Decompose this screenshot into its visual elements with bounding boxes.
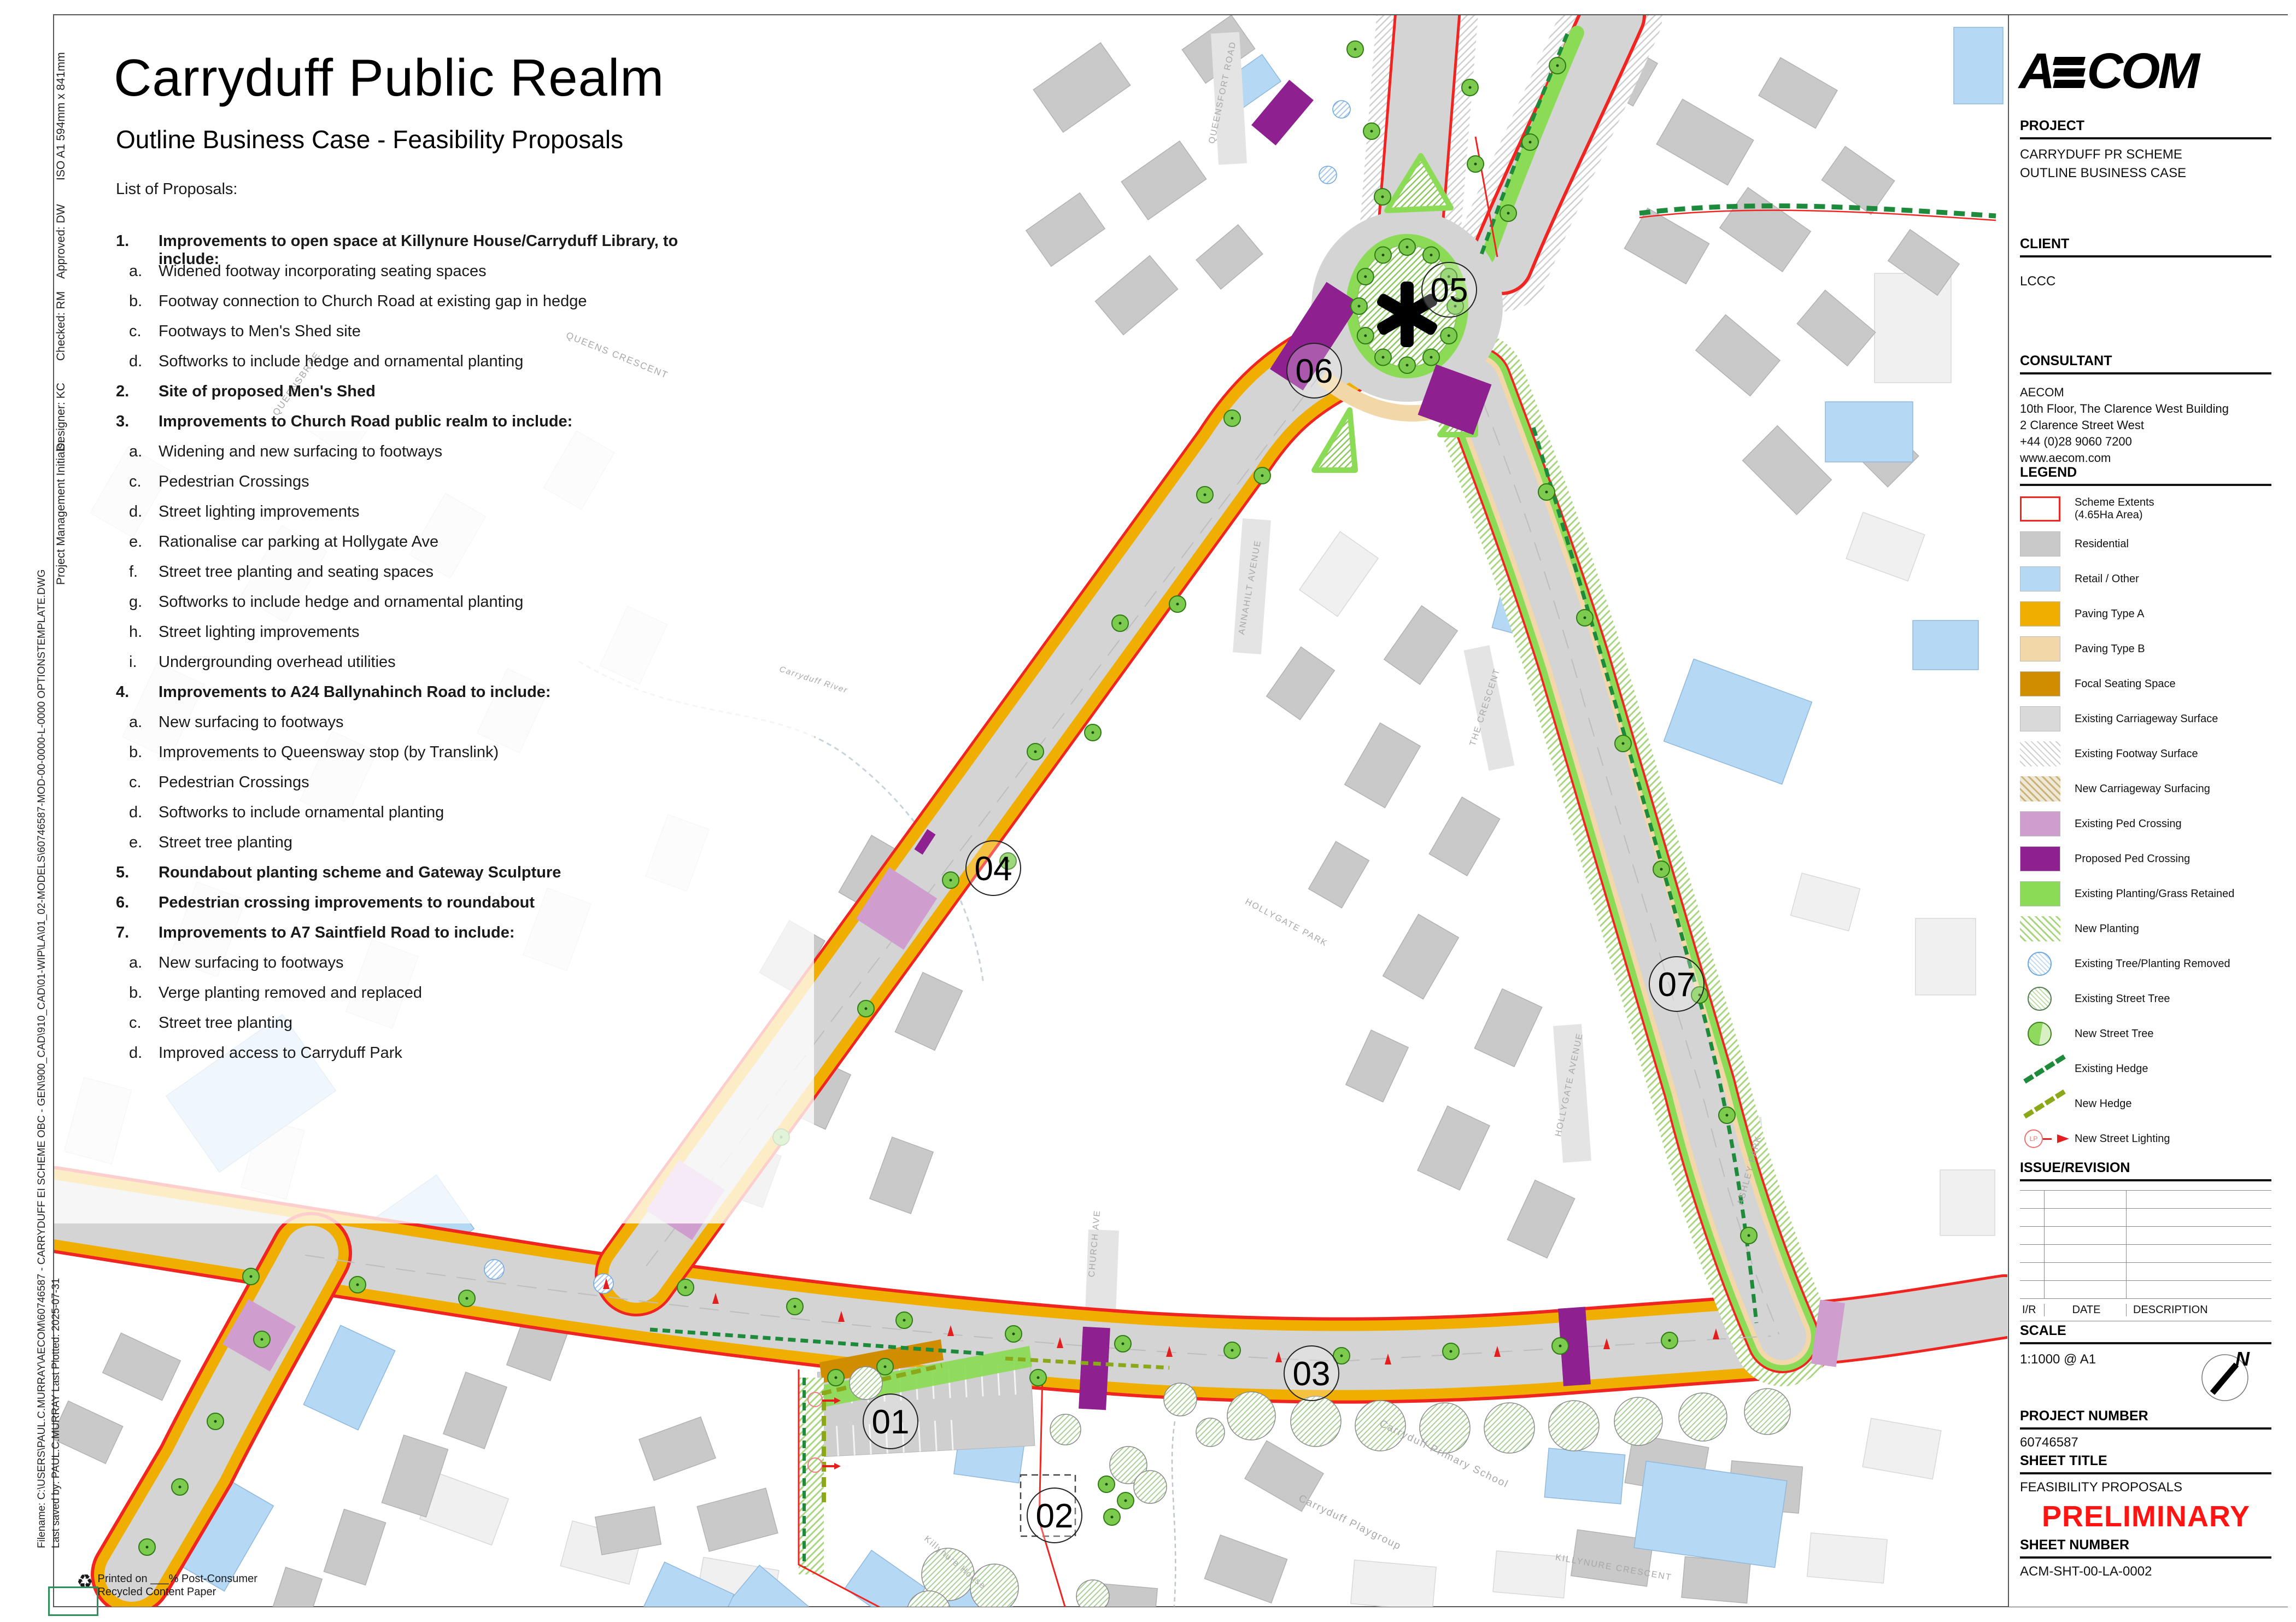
proposal-subitem: c.Footways to Men's Shed site [116, 323, 728, 353]
section-project-number: PROJECT NUMBER 60746587 [2020, 1408, 2271, 1450]
section-issue-revision: ISSUE/REVISION I/RDATEDESCRIPTION [2020, 1160, 2271, 1321]
legend-swatch-rect [2020, 881, 2075, 906]
margin-note: Checked: RM [55, 291, 68, 361]
legend-swatch-rect [2020, 706, 2075, 731]
margin-note: ISO A1 594mm x 841mm [55, 52, 68, 180]
legend-swatch-rect [2020, 496, 2075, 522]
legend-item: Existing Planting/Grass Retained [2020, 876, 2271, 911]
legend-list: Scheme Extents (4.65Ha Area)ResidentialR… [2020, 491, 2271, 1156]
aecom-logo: A COM [2019, 43, 2198, 100]
revision-row-empty [2020, 1209, 2271, 1227]
legend-label: Focal Seating Space [2075, 678, 2176, 690]
section-legend: LEGEND Scheme Extents (4.65Ha Area)Resid… [2020, 465, 2271, 1156]
proposal-subitem: c.Pedestrian Crossings [116, 774, 728, 804]
legend-swatch-circle-green [2020, 1022, 2075, 1046]
client-name: LCCC [2020, 274, 2271, 289]
proposal-subitem: f.Street tree planting and seating space… [116, 563, 728, 593]
print-note-line2: Recycled Content Paper [97, 1586, 216, 1598]
consultant-line: www.aecom.com [2020, 450, 2271, 466]
section-consultant: CONSULTANT AECOM10th Floor, The Clarence… [2020, 353, 2271, 466]
proposal-subitem: b.Improvements to Queensway stop (by Tra… [116, 743, 728, 774]
proposal-item: 6.Pedestrian crossing improvements to ro… [116, 894, 728, 924]
legend-swatch-rect [2020, 811, 2075, 836]
street-name: HOLLYGATE PARK [1244, 897, 1329, 948]
north-letter: N [2235, 1349, 2250, 1370]
proposal-subitem: h.Street lighting improvements [116, 623, 728, 653]
legend-label: Existing Carriageway Surface [2075, 713, 2218, 725]
proposal-subitem: e.Rationalise car parking at Hollygate A… [116, 533, 728, 563]
legend-heading: LEGEND [2020, 465, 2271, 486]
north-arrow-icon: N [2200, 1349, 2253, 1402]
proposal-subitem: i.Undergrounding overhead utilities [116, 653, 728, 683]
legend-swatch-rect [2020, 601, 2075, 626]
legend-swatch-circle-blue [2020, 952, 2075, 976]
legend-label: New Carriageway Surfacing [2075, 783, 2210, 795]
path-line [1172, 1421, 1175, 1607]
revision-row-empty [2020, 1281, 2271, 1299]
street-name: Carryduff Playgroup [1297, 1492, 1403, 1552]
list-heading: List of Proposals: [116, 180, 237, 198]
svg-text:03: 03 [1293, 1355, 1331, 1393]
legend-label: Existing Footway Surface [2075, 748, 2198, 760]
legend-label: Existing Hedge [2075, 1063, 2148, 1075]
legend-label: Existing Planting/Grass Retained [2075, 888, 2234, 900]
proposal-item: 2.Site of proposed Men's Shed [116, 383, 728, 413]
drawing-title: Carryduff Public Realm [114, 48, 664, 108]
revision-table: I/RDATEDESCRIPTION [2020, 1190, 2271, 1321]
legend-swatch-hatch-green [2020, 916, 2075, 941]
svg-text:07: 07 [1658, 966, 1696, 1004]
consultant-heading: CONSULTANT [2020, 353, 2271, 374]
proposal-subitem: b.Verge planting removed and replaced [116, 984, 728, 1014]
svg-text:04: 04 [975, 850, 1012, 888]
legend-item: New Planting [2020, 911, 2271, 946]
print-note-line1: Printed on ___% Post-Consumer [97, 1573, 257, 1585]
consultant-line: 2 Clarence Street West [2020, 417, 2271, 434]
legend-label: New Street Lighting [2075, 1133, 2170, 1145]
legend-label: New Hedge [2075, 1098, 2132, 1110]
svg-text:05: 05 [1431, 272, 1468, 309]
recycled-logo-box [48, 1586, 98, 1616]
legend-item: Existing Carriageway Surface [2020, 701, 2271, 736]
consultant-address: AECOM10th Floor, The Clarence West Build… [2020, 384, 2271, 466]
sheet-number-value: ACM-SHT-00-LA-0002 [2020, 1564, 2271, 1579]
legend-swatch-lamp: LP [2020, 1129, 2075, 1148]
logo-letter-a: A [2019, 43, 2053, 100]
legend-item: Existing Street Tree [2020, 981, 2271, 1016]
sheet-title-heading: SHEET TITLE [2020, 1453, 2271, 1474]
logo-letters-com: COM [2087, 43, 2198, 100]
recycled-paper-note: ♻ Printed on ___% Post-Consumer Recycled… [77, 1572, 257, 1598]
legend-item: Paving Type A [2020, 596, 2271, 631]
issue-revision-heading: ISSUE/REVISION [2020, 1160, 2271, 1181]
proposal-subitem: a.New surfacing to footways [116, 713, 728, 743]
project-number-value: 60746587 [2020, 1435, 2271, 1450]
consultant-line: 10th Floor, The Clarence West Building [2020, 401, 2271, 417]
proposal-item: 1.Improvements to open space at Killynur… [116, 232, 728, 262]
revision-header-row: I/RDATEDESCRIPTION [2020, 1299, 2271, 1321]
project-line-2: OUTLINE BUSINESS CASE [2020, 166, 2271, 181]
legend-item: Residential [2020, 526, 2271, 561]
revision-row-empty [2020, 1263, 2271, 1281]
proposal-item: 5.Roundabout planting scheme and Gateway… [116, 864, 728, 894]
consultant-line: AECOM [2020, 384, 2271, 401]
legend-item: Scheme Extents (4.65Ha Area) [2020, 491, 2271, 526]
proposal-subitem: d.Softworks to include hedge and ornamen… [116, 353, 728, 383]
legend-swatch-rect [2020, 566, 2075, 592]
proposal-subitem: d.Street lighting improvements [116, 503, 728, 533]
legend-label: Proposed Ped Crossing [2075, 853, 2190, 865]
project-heading: PROJECT [2020, 118, 2271, 139]
legend-swatch-dash-olive [2020, 1102, 2075, 1106]
section-project: PROJECT CARRYDUFF PR SCHEME OUTLINE BUSI… [2020, 118, 2271, 181]
svg-text:02: 02 [1036, 1497, 1074, 1535]
logo-e-bars-icon [2054, 57, 2084, 88]
proposal-subitem: g.Softworks to include hedge and ornamen… [116, 593, 728, 623]
proposal-item: 3.Improvements to Church Road public rea… [116, 413, 728, 443]
drawing-subtitle: Outline Business Case - Feasibility Prop… [116, 125, 623, 154]
section-sheet-number: SHEET NUMBER ACM-SHT-00-LA-0002 [2020, 1537, 2271, 1579]
legend-swatch-rect [2020, 671, 2075, 696]
legend-label: Paving Type A [2075, 608, 2145, 620]
margin-note: Approved: DW [55, 204, 68, 279]
legend-label: Scheme Extents (4.65Ha Area) [2075, 496, 2154, 522]
map-label-05: 05 [1422, 262, 1477, 317]
map-label-01: 01 [863, 1394, 918, 1449]
proposal-subitem: a.New surfacing to footways [116, 954, 728, 984]
section-client: CLIENT LCCC [2020, 236, 2271, 289]
map-label-03: 03 [1284, 1346, 1339, 1401]
proposal-subitem: e.Street tree planting [116, 834, 728, 864]
project-line-1: CARRYDUFF PR SCHEME [2020, 147, 2271, 162]
svg-text:01: 01 [872, 1403, 910, 1441]
legend-label: Existing Tree/Planting Removed [2075, 958, 2230, 970]
consultant-line: +44 (0)28 9060 7200 [2020, 434, 2271, 450]
sheet-title-value: FEASIBILITY PROPOSALS [2020, 1480, 2271, 1495]
file-note: Filename: C:\USERS\PAUL.C.MURRAY\AECOM\6… [36, 570, 48, 1548]
legend-item: Existing Tree/Planting Removed [2020, 946, 2271, 981]
legend-label: New Street Tree [2075, 1028, 2154, 1040]
section-scale: SCALE 1:1000 @ A1 N [2020, 1323, 2271, 1367]
proposal-subitem: a.Widening and new surfacing to footways [116, 443, 728, 473]
section-sheet-title: SHEET TITLE FEASIBILITY PROPOSALS PRELIM… [2020, 1453, 2271, 1533]
legend-item: New Street Tree [2020, 1016, 2271, 1051]
legend-item: New Carriageway Surfacing [2020, 771, 2271, 806]
legend-item: Proposed Ped Crossing [2020, 841, 2271, 876]
proposal-subitem: b.Footway connection to Church Road at e… [116, 292, 728, 323]
proposal-subitem: d.Improved access to Carryduff Park [116, 1044, 728, 1074]
legend-label: Residential [2075, 538, 2129, 551]
new-planting-strip [799, 1378, 824, 1574]
sheet-number-heading: SHEET NUMBER [2020, 1537, 2271, 1559]
legend-swatch-hatch-gray [2020, 741, 2075, 766]
legend-item: New Hedge [2020, 1086, 2271, 1121]
proposal-list: 1.Improvements to open space at Killynur… [116, 232, 728, 1074]
legend-item: Paving Type B [2020, 631, 2271, 666]
scale-heading: SCALE [2020, 1323, 2271, 1344]
legend-swatch-rect [2020, 636, 2075, 661]
title-block-panel: A COM PROJECT CARRYDUFF PR SCHEME OUTLIN… [2008, 15, 2288, 1607]
proposal-item: 7.Improvements to A7 Saintfield Road to … [116, 924, 728, 954]
legend-label: New Planting [2075, 923, 2139, 935]
legend-item: Focal Seating Space [2020, 666, 2271, 701]
map-label-04: 04 [966, 841, 1021, 895]
proposal-subitem: c.Pedestrian Crossings [116, 473, 728, 503]
legend-swatch-rect [2020, 531, 2075, 557]
client-heading: CLIENT [2020, 236, 2271, 257]
project-number-heading: PROJECT NUMBER [2020, 1408, 2271, 1430]
map-label-06: 06 [1287, 343, 1342, 398]
legend-swatch-circle-green-hatch [2020, 987, 2075, 1011]
legend-label: Existing Street Tree [2075, 993, 2170, 1005]
proposal-subitem: a.Widened footway incorporating seating … [116, 262, 728, 292]
legend-label: Retail / Other [2075, 573, 2139, 585]
legend-label: Existing Ped Crossing [2075, 818, 2182, 830]
file-note: Last saved by: PAUL.C.MURRAY Last Plotte… [50, 1278, 62, 1548]
map-label-07: 07 [1649, 957, 1704, 1011]
proposal-subitem: d.Softworks to include ornamental planti… [116, 804, 728, 834]
legend-item: LPNew Street Lighting [2020, 1121, 2271, 1156]
preliminary-stamp: PRELIMINARY [2042, 1500, 2271, 1533]
legend-label: Paving Type B [2075, 643, 2145, 655]
revision-row-empty [2020, 1245, 2271, 1263]
legend-swatch-rect [2020, 846, 2075, 871]
legend-item: Existing Hedge [2020, 1051, 2271, 1086]
svg-text:06: 06 [1296, 353, 1333, 390]
margin-note: Project Management Initials: [55, 440, 68, 585]
legend-item: Existing Footway Surface [2020, 736, 2271, 771]
legend-swatch-dash-darkgreen [2020, 1067, 2075, 1071]
proposal-subitem: c.Street tree planting [116, 1014, 728, 1044]
map-label-02: 02 [1027, 1488, 1082, 1543]
revision-row-empty [2020, 1227, 2271, 1245]
legend-item: Retail / Other [2020, 561, 2271, 596]
proposal-item: 4.Improvements to A24 Ballynahinch Road … [116, 683, 728, 713]
legend-item: Existing Ped Crossing [2020, 806, 2271, 841]
legend-swatch-hatch-tan [2020, 776, 2075, 801]
revision-row-empty [2020, 1191, 2271, 1209]
